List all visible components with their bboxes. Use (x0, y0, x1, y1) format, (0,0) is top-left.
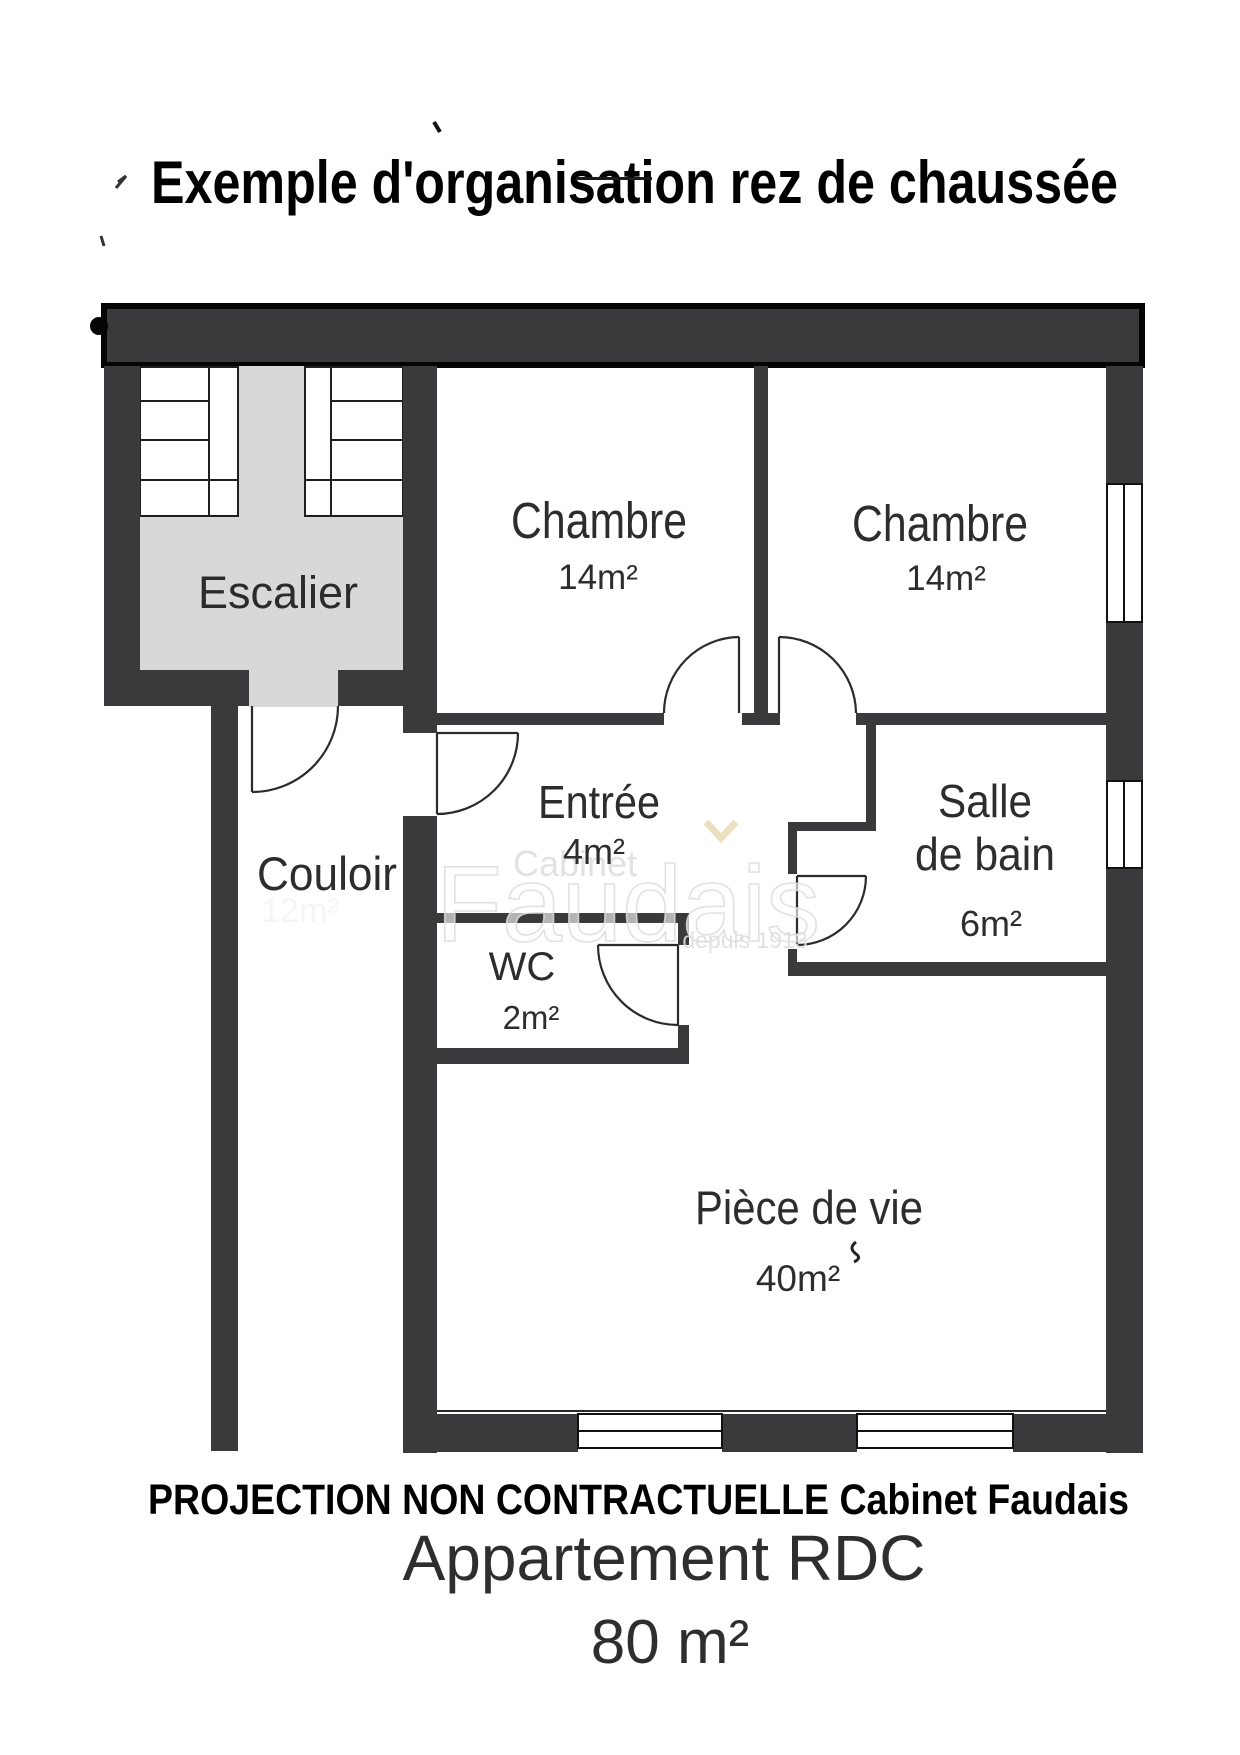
svg-text:80 m²: 80 m² (591, 1608, 749, 1677)
svg-text:Couloir: Couloir (257, 847, 397, 900)
svg-text:40m²: 40m² (756, 1258, 840, 1299)
svg-text:Escalier: Escalier (198, 567, 358, 618)
svg-text:Appartement RDC: Appartement RDC (403, 1522, 926, 1594)
svg-text:2m²: 2m² (503, 999, 560, 1036)
svg-text:WC: WC (489, 945, 556, 989)
svg-text:Chambre: Chambre (511, 492, 687, 549)
svg-text:14m²: 14m² (558, 558, 638, 597)
svg-text:PROJECTION NON CONTRACTUELLE C: PROJECTION NON CONTRACTUELLE Cabinet Fau… (148, 1476, 1129, 1524)
svg-text:Pièce de vie: Pièce de vie (695, 1181, 923, 1234)
svg-text:4m²: 4m² (563, 831, 625, 872)
svg-text:14m²: 14m² (906, 559, 986, 598)
svg-text:Chambre: Chambre (852, 495, 1028, 552)
svg-text:6m²: 6m² (960, 903, 1022, 944)
svg-text:de bain: de bain (915, 828, 1055, 880)
svg-text:depuis 1913: depuis 1913 (682, 927, 807, 953)
svg-text:Entrée: Entrée (538, 776, 660, 828)
svg-text:Salle: Salle (938, 775, 1032, 827)
svg-text:Exemple d'organisation rez de: Exemple d'organisation rez de chaussée (151, 149, 1118, 216)
